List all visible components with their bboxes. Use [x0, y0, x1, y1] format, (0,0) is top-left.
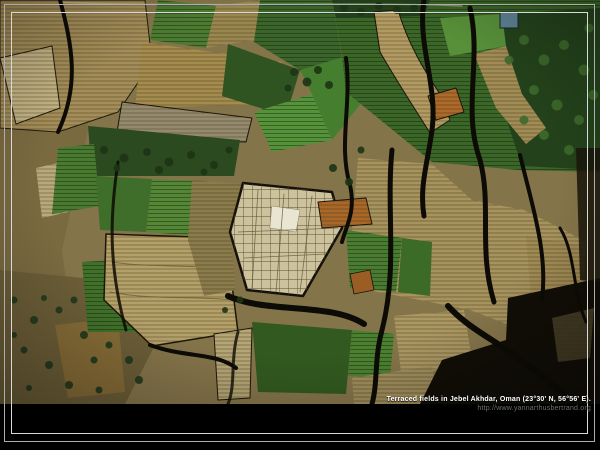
- caption-title: Terraced fields in Jebel Akhdar, Oman (2…: [387, 396, 591, 404]
- vignette-overlay: [0, 0, 600, 404]
- wallpaper: { "caption": { "title": "Terraced fields…: [0, 0, 600, 450]
- terraced-fields-illustration: [0, 0, 600, 404]
- caption-url: http://www.yannarthusbertrand.org: [387, 405, 591, 413]
- aerial-photo: [0, 0, 600, 404]
- photo-caption: Terraced fields in Jebel Akhdar, Oman (2…: [387, 396, 591, 413]
